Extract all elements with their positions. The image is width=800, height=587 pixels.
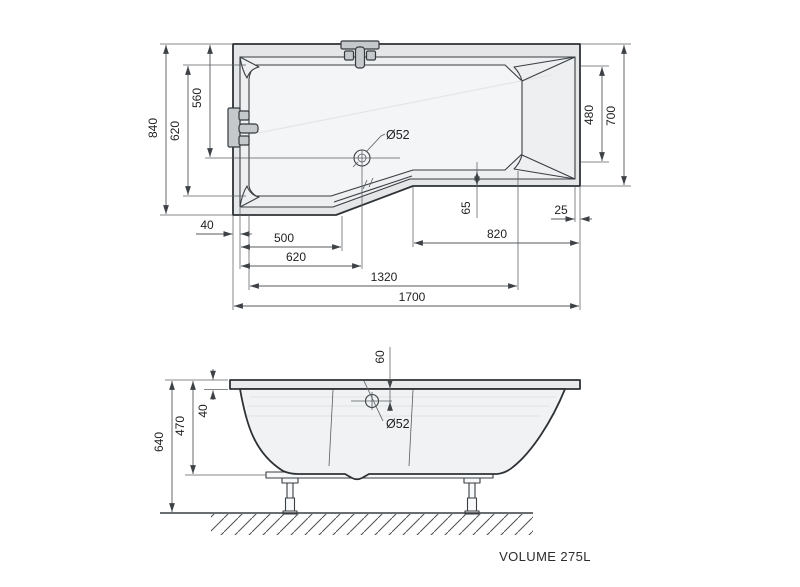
fixture-tab-bottom — [239, 136, 249, 145]
dim-label-60: 60 — [373, 350, 387, 364]
dim-640: 640 — [152, 381, 172, 512]
dim-25-right-rim: 25 — [551, 203, 592, 219]
dim-560: 560 — [190, 45, 210, 157]
dim-1320: 1320 — [250, 270, 517, 286]
fixture-stem — [356, 47, 365, 68]
dim-label-820: 820 — [487, 227, 507, 241]
dim-470: 470 — [173, 381, 193, 474]
dim-label-560: 560 — [190, 88, 204, 108]
leg-shaft — [469, 483, 475, 498]
dim-label-620-height: 620 — [168, 121, 182, 141]
ground-hatch — [211, 514, 533, 535]
dim-label-700: 700 — [604, 106, 618, 126]
fixture-tab-top — [239, 111, 249, 120]
leg-plate — [282, 478, 298, 483]
dim-label-1320: 1320 — [371, 270, 398, 284]
drain-diameter-label: Ø52 — [386, 417, 410, 431]
dim-40-left-rim: 40 — [196, 218, 252, 234]
leg-lower — [468, 498, 477, 511]
dim-500: 500 — [241, 231, 341, 247]
dim-label-500: 500 — [274, 231, 294, 245]
dim-label-40: 40 — [200, 218, 214, 232]
side-view: Ø52 — [160, 380, 580, 535]
fixture-plate — [228, 108, 240, 147]
support-leg-left — [282, 478, 298, 514]
dim-label-480: 480 — [582, 105, 596, 125]
dim-840: 840 — [146, 45, 166, 214]
rim-slab — [230, 380, 580, 389]
drain-diameter-label: Ø52 — [386, 128, 410, 142]
leg-lower — [286, 498, 295, 511]
dim-label-840: 840 — [146, 118, 160, 138]
volume-label: VOLUME 275L — [499, 549, 591, 564]
bathtub-technical-drawing: Ø52 — [0, 0, 800, 587]
dim-label-640: 640 — [152, 432, 166, 452]
dim-620-height: 620 — [168, 66, 188, 195]
tub-body — [240, 389, 565, 479]
dim-label-1700: 1700 — [399, 290, 426, 304]
dim-820: 820 — [414, 227, 579, 243]
dim-label-620-length: 620 — [286, 250, 306, 264]
dim-label-470: 470 — [173, 416, 187, 436]
dim-40-rim: 40 — [196, 369, 213, 418]
fixture-tab-right — [367, 51, 376, 60]
dim-620-length: 620 — [241, 250, 361, 266]
support-leg-right — [464, 478, 480, 514]
leg-plate — [464, 478, 480, 483]
dim-label-65: 65 — [459, 201, 473, 215]
fixture-tab-left — [345, 51, 354, 60]
dim-1700: 1700 — [234, 290, 579, 306]
dim-label-40-rim: 40 — [196, 404, 210, 418]
leg-shaft — [287, 483, 293, 498]
dim-label-25: 25 — [554, 203, 568, 217]
fixture-stem — [239, 124, 258, 133]
top-view: Ø52 — [228, 41, 580, 215]
dim-480: 480 — [582, 67, 602, 161]
drawing-page: Ø52 — [0, 0, 800, 587]
